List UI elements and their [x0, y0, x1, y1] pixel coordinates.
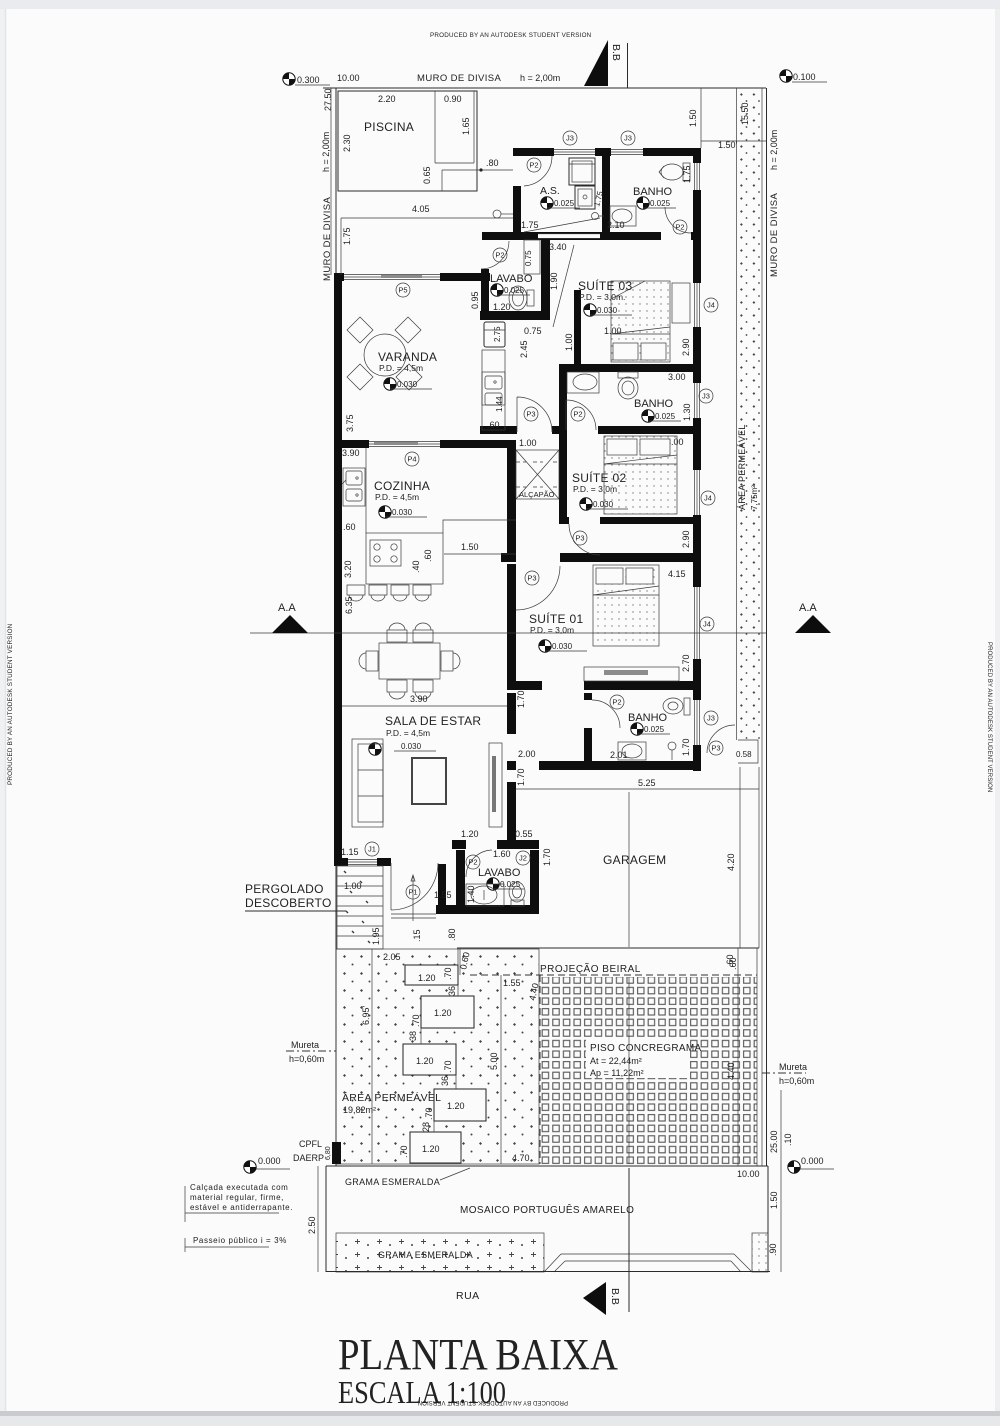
svg-text:Ap = 11,22m²: Ap = 11,22m²: [590, 1068, 644, 1078]
svg-text:25.00: 25.00: [769, 1130, 779, 1153]
svg-text:0.100: 0.100: [793, 72, 816, 82]
svg-text:BANHO: BANHO: [633, 186, 673, 198]
svg-text:P.D. = 4,5m: P.D. = 4,5m: [375, 492, 419, 502]
svg-text:1.20: 1.20: [416, 1056, 434, 1066]
svg-text:J3: J3: [702, 392, 710, 401]
svg-text:At = 22,44m²: At = 22,44m²: [590, 1056, 642, 1066]
svg-text:3.90: 3.90: [342, 448, 360, 458]
svg-text:5.25: 5.25: [638, 778, 656, 788]
svg-text:0.025: 0.025: [655, 412, 676, 421]
svg-text:0.65: 0.65: [422, 166, 432, 184]
svg-text:DAERP: DAERP: [293, 1153, 324, 1163]
svg-text:1.70: 1.70: [542, 848, 552, 866]
svg-text:A.A: A.A: [278, 602, 296, 614]
svg-text:0.025: 0.025: [650, 199, 671, 208]
svg-text:h=0,60m: h=0,60m: [289, 1054, 324, 1064]
svg-text:6.35: 6.35: [344, 596, 354, 614]
svg-text:1.60: 1.60: [493, 849, 511, 859]
svg-text:P3: P3: [575, 534, 584, 543]
svg-text:MURO DE DIVISA: MURO DE DIVISA: [417, 73, 502, 84]
svg-text:1.70: 1.70: [516, 690, 526, 708]
svg-text:P2: P2: [468, 858, 477, 867]
svg-text:15.50: 15.50: [740, 102, 750, 125]
svg-text:38: 38: [408, 1031, 418, 1041]
svg-text:Calçada executada com: Calçada executada com: [190, 1183, 288, 1192]
svg-text:.60: .60: [725, 954, 735, 967]
svg-text:4.40: 4.40: [726, 1062, 736, 1080]
svg-text:ESCALA 1:100: ESCALA 1:100: [338, 1374, 506, 1410]
svg-text:P5: P5: [398, 286, 407, 295]
svg-text:ÁREA PERMEÁVEL: ÁREA PERMEÁVEL: [737, 424, 747, 510]
svg-text:GRAMA ESMERALDA: GRAMA ESMERALDA: [345, 1177, 440, 1187]
svg-text:2.00: 2.00: [518, 749, 536, 759]
svg-text:2.75: 2.75: [493, 326, 502, 342]
svg-text:material regular, firme,: material regular, firme,: [190, 1193, 284, 1202]
svg-text:1.75: 1.75: [682, 165, 692, 183]
svg-text:h=0,60m: h=0,60m: [779, 1076, 814, 1086]
svg-text:GRAMA ESMERALDA: GRAMA ESMERALDA: [378, 1250, 473, 1260]
svg-text:0.58: 0.58: [736, 750, 752, 759]
svg-text:J2: J2: [519, 854, 527, 863]
svg-text:1.20: 1.20: [461, 829, 479, 839]
svg-text:4.20: 4.20: [726, 853, 736, 871]
svg-text:SUÍTE 03: SUÍTE 03: [578, 278, 632, 293]
svg-text:Passeio público i = 3%: Passeio público i = 3%: [193, 1236, 287, 1245]
svg-text:1.55: 1.55: [434, 890, 452, 900]
svg-text:P3: P3: [711, 744, 720, 753]
svg-text:1.00: 1.00: [344, 881, 362, 891]
svg-text:0.030: 0.030: [392, 508, 413, 517]
svg-text:.70: .70: [399, 1145, 409, 1158]
svg-text:J3: J3: [707, 714, 715, 723]
svg-text:P2: P2: [529, 161, 538, 170]
svg-text:1.75: 1.75: [342, 227, 352, 245]
svg-text:1.95: 1.95: [371, 927, 381, 945]
svg-text:2.45: 2.45: [519, 340, 529, 358]
svg-text:0.030: 0.030: [397, 380, 418, 389]
svg-text:P4: P4: [407, 455, 416, 464]
svg-text:Mureta: Mureta: [291, 1040, 319, 1050]
svg-text:1.50: 1.50: [461, 542, 479, 552]
svg-text:2.20: 2.20: [378, 94, 396, 104]
svg-text:2.01: 2.01: [610, 750, 628, 760]
svg-text:.10: .10: [783, 1133, 793, 1146]
svg-text:0.300: 0.300: [297, 75, 320, 85]
svg-text:J4: J4: [704, 494, 712, 503]
svg-text:1.20: 1.20: [422, 1144, 440, 1154]
svg-text:0.030: 0.030: [597, 306, 618, 315]
svg-text:P3: P3: [527, 574, 536, 583]
svg-text:0.95: 0.95: [470, 291, 480, 309]
svg-text:3.40: 3.40: [549, 242, 567, 252]
svg-text:.60: .60: [343, 522, 356, 532]
svg-text:0.55: 0.55: [515, 829, 533, 839]
svg-text:1.20: 1.20: [493, 302, 511, 312]
svg-text:1.50: 1.50: [769, 1191, 779, 1209]
svg-text:4.70: 4.70: [512, 1153, 530, 1163]
svg-text:MOSAICO PORTUGUÊS AMARELO: MOSAICO PORTUGUÊS AMARELO: [460, 1203, 634, 1216]
svg-text:4.05: 4.05: [412, 204, 430, 214]
svg-text:1.55: 1.55: [503, 978, 521, 988]
svg-text:P.D. = 4,5m: P.D. = 4,5m: [386, 728, 430, 738]
svg-text:6,80: 6,80: [325, 1146, 332, 1160]
svg-text:J3: J3: [624, 134, 632, 143]
svg-text:.70: .70: [424, 1107, 434, 1120]
svg-text:P2: P2: [612, 698, 621, 707]
svg-text:P2: P2: [675, 223, 684, 232]
svg-text:0.030: 0.030: [401, 742, 422, 751]
svg-text:0.75: 0.75: [524, 326, 542, 336]
svg-text:J4: J4: [703, 620, 711, 629]
svg-text:estável e antiderrapante.: estável e antiderrapante.: [190, 1203, 293, 1212]
svg-text:J1: J1: [368, 845, 376, 854]
svg-text:J4: J4: [707, 301, 715, 310]
svg-text:2.50: 2.50: [307, 1216, 317, 1234]
svg-text:0.025: 0.025: [500, 880, 521, 889]
svg-text:5.00: 5.00: [489, 1052, 499, 1070]
svg-text:0.025: 0.025: [644, 725, 665, 734]
svg-text:1.20: 1.20: [418, 973, 436, 983]
svg-text:28: 28: [421, 1122, 431, 1132]
svg-text:3.75: 3.75: [345, 414, 355, 432]
svg-text:.60: .60: [423, 549, 433, 562]
svg-text:PRODUCED BY AN AUTODESK STUDEN: PRODUCED BY AN AUTODESK STUDENT VERSION: [430, 32, 592, 39]
svg-text:B.B: B.B: [610, 44, 622, 61]
svg-text:COZINHA: COZINHA: [374, 479, 430, 493]
svg-text:36: 36: [440, 1076, 450, 1086]
svg-text:.70: .70: [443, 1060, 453, 1073]
svg-text:P3: P3: [526, 410, 535, 419]
svg-text:0.030: 0.030: [552, 642, 573, 651]
svg-text:1.50': 1.50': [718, 140, 738, 150]
svg-text:6.95': 6.95': [361, 1005, 371, 1025]
svg-text:10.00: 10.00: [337, 73, 360, 83]
svg-text:h = 2,00m: h = 2,00m: [520, 73, 560, 83]
svg-text:A.A: A.A: [799, 602, 817, 614]
svg-text:A.S.: A.S.: [540, 185, 560, 197]
svg-text:4.15: 4.15: [668, 569, 686, 579]
svg-text:.80: .80: [447, 928, 457, 941]
svg-text:PISCINA: PISCINA: [364, 120, 414, 134]
svg-text:3.00: 3.00: [668, 372, 686, 382]
svg-text:1.00: 1.00: [519, 438, 537, 448]
svg-text:0.75: 0.75: [524, 250, 533, 266]
svg-text:2.90: 2.90: [681, 338, 691, 356]
svg-text:P.D. = 3,0m.: P.D. = 3,0m.: [579, 292, 625, 302]
svg-text:PISO CONCREGRAMA: PISO CONCREGRAMA: [590, 1043, 702, 1054]
svg-text:1.70: 1.70: [681, 738, 691, 756]
svg-text:1.75: 1.75: [521, 220, 539, 230]
svg-text:PLANTA BAIXA: PLANTA BAIXA: [338, 1330, 618, 1379]
svg-text:P.D. = 3,0m: P.D. = 3,0m: [530, 625, 574, 635]
svg-text:2.90: 2.90: [681, 530, 691, 548]
svg-text:.60: .60: [487, 420, 500, 430]
svg-text:0.000: 0.000: [258, 1156, 281, 1166]
svg-text:2.10: 2.10: [607, 220, 625, 230]
svg-text:LAVABO: LAVABO: [490, 273, 533, 285]
svg-text:1.40: 1.40: [466, 885, 476, 903]
svg-text:1.20: 1.20: [434, 1008, 452, 1018]
svg-text:ÁREA PERMEÁVEL: ÁREA PERMEÁVEL: [342, 1091, 441, 1104]
svg-text:h = 2,00m: h = 2,00m: [321, 132, 331, 172]
svg-text:.90: .90: [768, 1243, 778, 1256]
svg-text:BANHO: BANHO: [628, 712, 668, 724]
svg-text:P2: P2: [495, 251, 504, 260]
svg-text:h = 2,00m: h = 2,00m: [769, 130, 779, 170]
svg-text:Mureta: Mureta: [779, 1062, 807, 1072]
svg-text:0.025: 0.025: [554, 199, 575, 208]
svg-text:ALÇAPÃO: ALÇAPÃO: [519, 490, 555, 499]
svg-text:27.50: 27.50: [323, 88, 333, 111]
svg-text:MURO DE DIVISA: MURO DE DIVISA: [769, 192, 780, 277]
svg-text:BANHO: BANHO: [634, 398, 674, 410]
svg-text:VARANDA: VARANDA: [378, 350, 437, 364]
svg-text:2.70: 2.70: [681, 654, 691, 672]
svg-text:.80: .80: [486, 158, 499, 168]
svg-text:SALA DE ESTAR: SALA DE ESTAR: [385, 714, 481, 728]
svg-text:7,75m²: 7,75m²: [750, 485, 759, 510]
svg-text:GARAGEM: GARAGEM: [603, 853, 666, 867]
svg-text:.70: .70: [443, 967, 453, 980]
svg-text:P2: P2: [573, 410, 582, 419]
svg-text:3.90: 3.90: [410, 694, 428, 704]
svg-text:1.00: 1.00: [564, 333, 574, 351]
svg-text:10.00: 10.00: [737, 1169, 760, 1179]
svg-text:3.20: 3.20: [343, 560, 353, 578]
svg-text:SUÍTE 01: SUÍTE 01: [529, 611, 583, 626]
svg-text:DESCOBERTO: DESCOBERTO: [245, 896, 332, 910]
svg-text:.15: .15: [412, 929, 422, 942]
svg-text:1.65: 1.65: [461, 117, 471, 135]
svg-text:1.20: 1.20: [447, 1101, 465, 1111]
svg-text:1.15: 1.15: [341, 847, 359, 857]
svg-text:1.30: 1.30: [682, 403, 692, 421]
svg-text:PRODUCED BY AN AUTODESK STUDEN: PRODUCED BY AN AUTODESK STUDENT VERSION: [986, 642, 992, 792]
svg-text:B.B: B.B: [609, 1288, 621, 1305]
svg-text:2.05: 2.05: [383, 952, 401, 962]
svg-text:1.90: 1.90: [549, 272, 559, 290]
svg-text:1.44: 1.44: [495, 396, 504, 412]
svg-text:1.50: 1.50: [688, 109, 698, 127]
svg-text:PRODUCED BY AN AUTODESK STUDEN: PRODUCED BY AN AUTODESK STUDENT VERSION: [7, 623, 14, 785]
svg-text:.70: .70: [411, 1014, 421, 1027]
svg-text:RUA: RUA: [456, 1290, 480, 1302]
svg-text:CPFL: CPFL: [299, 1139, 322, 1149]
svg-text:PROJEÇÃO BEIRAL: PROJEÇÃO BEIRAL: [540, 962, 641, 975]
svg-text:P.D. = 4,5m: P.D. = 4,5m: [379, 363, 423, 373]
svg-text:19,82m²: 19,82m²: [343, 1105, 376, 1115]
svg-text:J3: J3: [566, 134, 574, 143]
svg-text:0.90: 0.90: [444, 94, 462, 104]
svg-text:0.000: 0.000: [801, 1156, 824, 1166]
svg-text:36: 36: [447, 986, 457, 996]
svg-text:1.70: 1.70: [516, 768, 526, 786]
svg-text:2.30: 2.30: [342, 134, 352, 152]
svg-text:.40: .40: [411, 560, 421, 573]
svg-text:LAVABO: LAVABO: [478, 867, 521, 879]
svg-text:PERGOLADO: PERGOLADO: [245, 882, 324, 896]
